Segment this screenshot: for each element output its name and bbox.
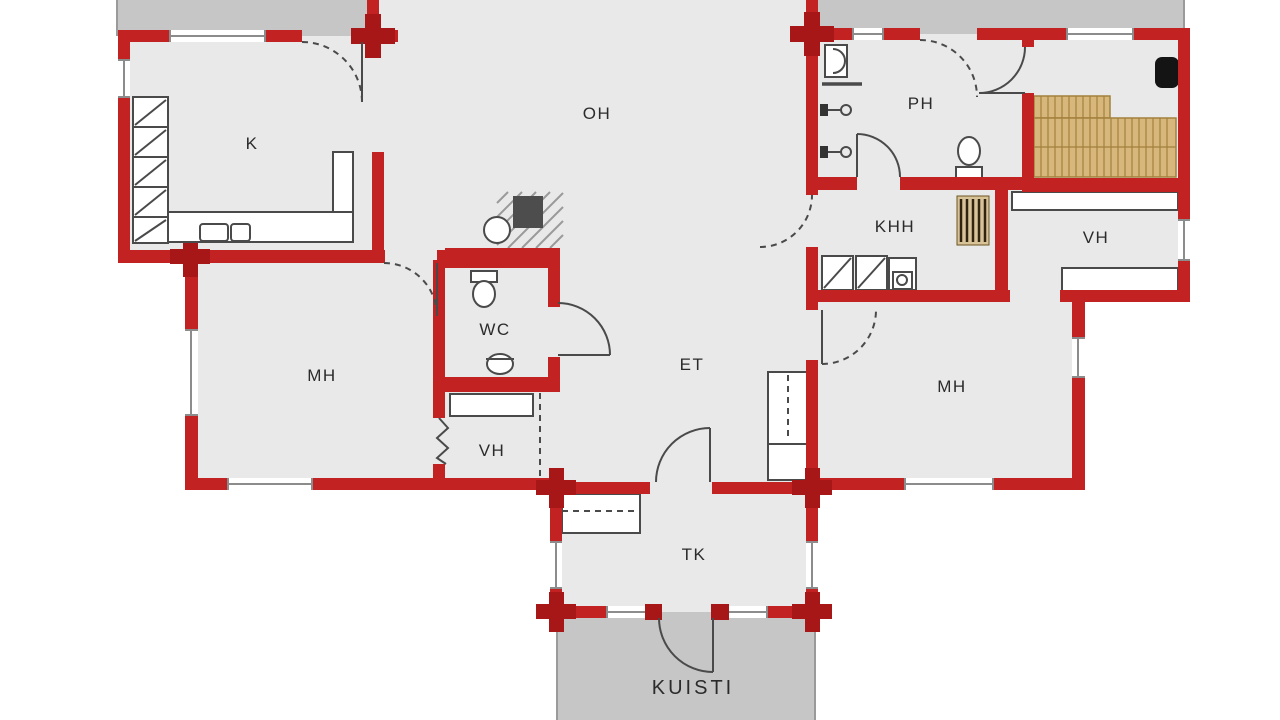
floor-plan-drawing: K OH PH KHH VH MH WC ET VH MH TK KUISTI [0, 0, 1280, 720]
window [228, 478, 312, 490]
window [1067, 28, 1133, 40]
outside-left [0, 263, 185, 720]
vestibule-closet [562, 494, 640, 533]
window [550, 542, 562, 588]
shower-mixer-icon [820, 146, 828, 158]
window [727, 606, 767, 618]
window [170, 30, 265, 42]
room-label-closet-left: VH [479, 441, 506, 460]
kitchen-counter [168, 212, 353, 242]
room-label-utility-room: KHH [875, 217, 915, 236]
kitchen-sink [200, 224, 228, 241]
closet-right-shelf-top [1012, 192, 1178, 210]
floor-bedroom-right [812, 302, 1085, 490]
shower-mixer-icon [820, 104, 828, 116]
kitchen-sink-bowl [231, 224, 250, 241]
junction-cross [645, 604, 662, 620]
room-label-hallway: ET [680, 355, 705, 374]
room-label-kitchen: K [246, 134, 259, 153]
window [905, 478, 993, 490]
window [1178, 220, 1190, 260]
room-label-living-room: OH [583, 104, 612, 123]
window [118, 60, 130, 97]
hall-wardrobe-lower [768, 444, 808, 480]
closet-right-shelf-bottom [1062, 268, 1178, 292]
wc-sink [487, 354, 513, 374]
toilet-tank [956, 167, 982, 178]
room-label-wc: WC [479, 320, 510, 339]
junction-cross [711, 604, 729, 620]
room-label-bedroom-left: MH [307, 366, 336, 385]
window [853, 28, 883, 40]
toilet-bowl [473, 281, 495, 307]
fireplace-core [513, 196, 543, 228]
room-label-closet-right: VH [1083, 228, 1110, 247]
window [806, 542, 818, 588]
room-label-vestibule: TK [682, 545, 707, 564]
room-label-bedroom-right: MH [937, 377, 966, 396]
room-label-porch: KUISTI [652, 677, 734, 699]
window [607, 606, 647, 618]
room-label-washroom: PH [908, 94, 935, 113]
window [185, 330, 198, 415]
sauna-stove [1155, 57, 1179, 88]
kitchen-counter-return [333, 152, 353, 212]
closet-left-shelf [450, 394, 533, 416]
outside-right [1085, 302, 1280, 720]
window [1072, 338, 1085, 377]
toilet-bowl [958, 137, 980, 165]
fireplace-hearth [484, 217, 510, 243]
sauna-bench-upper [1034, 96, 1110, 118]
